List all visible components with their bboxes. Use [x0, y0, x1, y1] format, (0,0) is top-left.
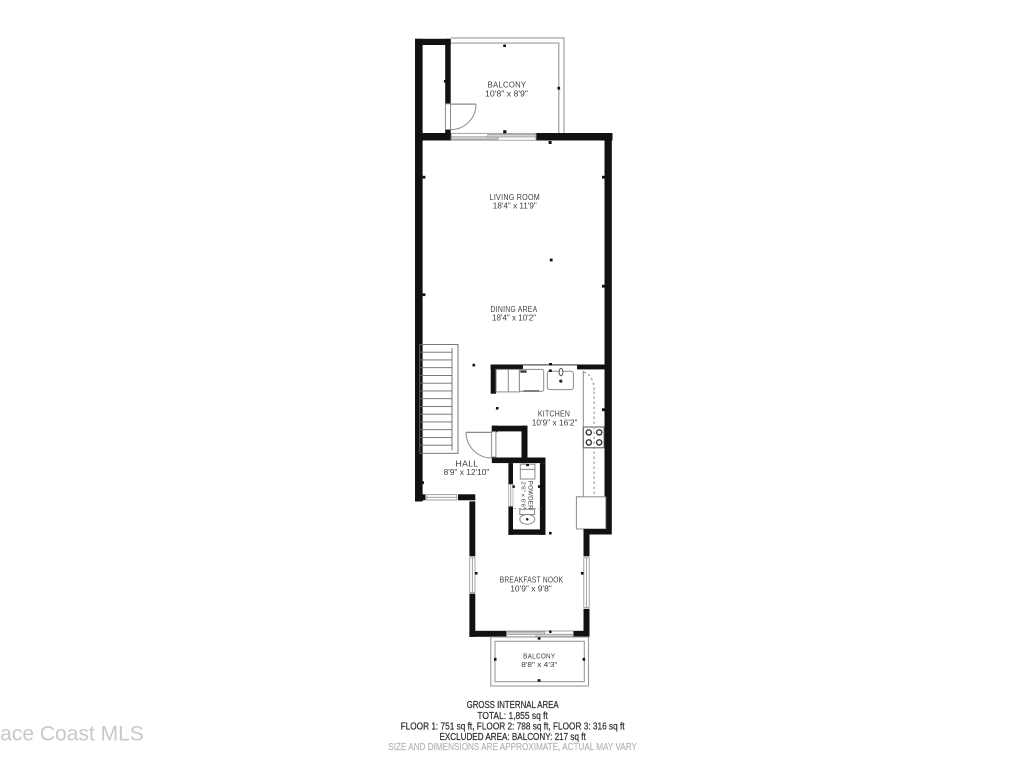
svg-text:BALCONY: BALCONY	[488, 80, 527, 90]
svg-text:10'8" x 8'9": 10'8" x 8'9"	[485, 89, 528, 98]
svg-text:SIZE AND DIMENSIONS ARE APPROX: SIZE AND DIMENSIONS ARE APPROXIMATE, ACT…	[388, 742, 637, 753]
svg-text:10'9" x 9'8": 10'9" x 9'8"	[510, 584, 552, 593]
svg-text:10'9" x 16'2": 10'9" x 16'2"	[532, 418, 578, 427]
svg-text:Space Coast MLS: Space Coast MLS	[0, 723, 144, 746]
svg-text:GROSS INTERNAL AREA: GROSS INTERNAL AREA	[467, 700, 559, 711]
svg-text:18'4" x 11'9": 18'4" x 11'9"	[493, 201, 537, 210]
svg-text:2'6" x 6'6": 2'6" x 6'6"	[520, 481, 526, 509]
svg-text:KITCHEN: KITCHEN	[538, 409, 570, 419]
svg-text:18'4" x 10'2": 18'4" x 10'2"	[492, 314, 536, 323]
svg-text:8'9" x 12'10": 8'9" x 12'10"	[444, 468, 490, 477]
svg-text:POWDER: POWDER	[527, 481, 533, 510]
svg-text:BREAKFAST NOOK: BREAKFAST NOOK	[500, 575, 564, 585]
svg-text:HALL: HALL	[456, 459, 479, 469]
svg-text:8'8" x 4'3": 8'8" x 4'3"	[521, 660, 558, 669]
svg-text:TOTAL: 1,855 sq ft: TOTAL: 1,855 sq ft	[477, 711, 548, 722]
